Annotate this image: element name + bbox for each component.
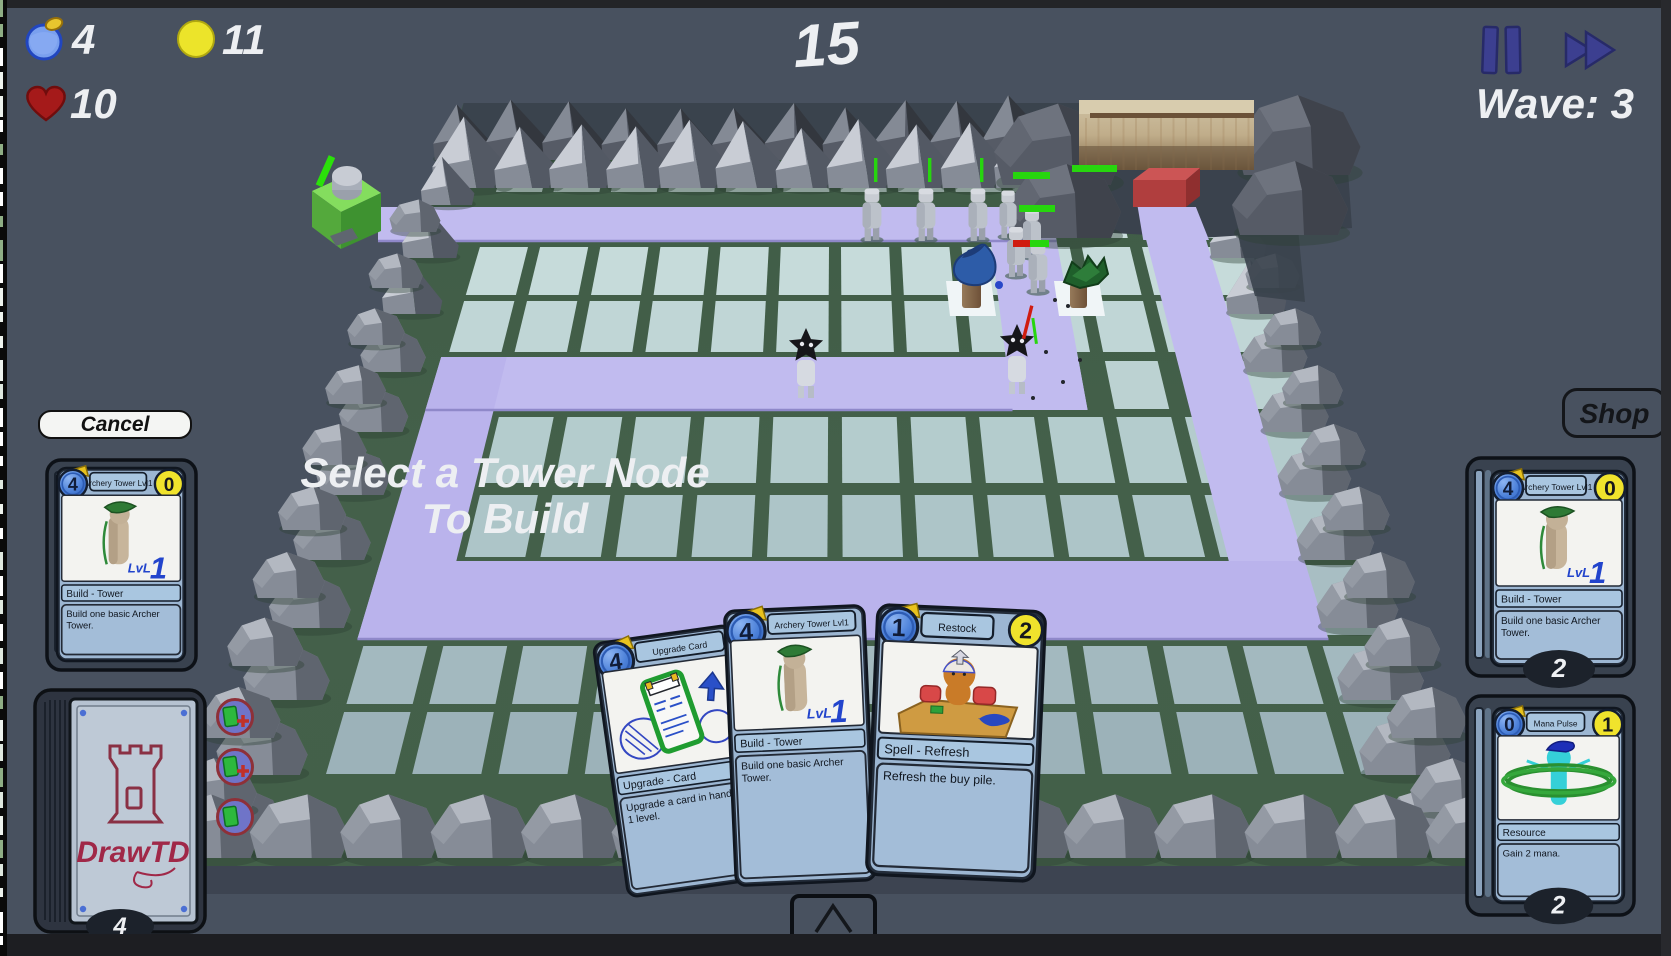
svg-text:Gain 2 mana.: Gain 2 mana. <box>1503 849 1561 860</box>
svg-text:0: 0 <box>1504 715 1515 736</box>
svg-text:4: 4 <box>68 474 78 494</box>
svg-text:Resource: Resource <box>1503 828 1547 839</box>
svg-text:Mana Pulse: Mana Pulse <box>1534 718 1578 728</box>
svg-text:2: 2 <box>1551 892 1566 920</box>
svg-text:LvL: LvL <box>128 560 151 575</box>
svg-text:1: 1 <box>1589 555 1606 590</box>
svg-text:1: 1 <box>150 550 167 585</box>
svg-text:DrawTD: DrawTD <box>76 836 189 869</box>
svg-text:0: 0 <box>164 475 175 496</box>
svg-text:1: 1 <box>829 693 848 730</box>
svg-text:Restock: Restock <box>938 622 977 636</box>
svg-text:LvL: LvL <box>806 704 832 721</box>
svg-text:LvL: LvL <box>1567 565 1590 580</box>
svg-text:Tower.: Tower. <box>1501 628 1530 639</box>
svg-text:Archery Tower Lvl1: Archery Tower Lvl1 <box>84 479 153 488</box>
svg-text:Tower.: Tower. <box>66 619 93 630</box>
svg-text:4: 4 <box>1503 479 1514 500</box>
svg-text:1: 1 <box>1602 715 1613 737</box>
svg-text:Build - Tower: Build - Tower <box>1501 594 1562 606</box>
svg-text:Build one basic Archer: Build one basic Archer <box>1501 616 1601 627</box>
svg-text:0: 0 <box>1604 478 1616 501</box>
svg-text:Tower.: Tower. <box>741 773 771 785</box>
svg-text:Build one basic Archer: Build one basic Archer <box>66 608 159 619</box>
svg-text:2: 2 <box>1551 653 1567 683</box>
svg-text:2: 2 <box>1019 617 1033 644</box>
svg-text:Archery Tower Lvl1: Archery Tower Lvl1 <box>1520 482 1593 492</box>
svg-text:Build - Tower: Build - Tower <box>66 589 124 600</box>
svg-text:1: 1 <box>891 614 906 643</box>
